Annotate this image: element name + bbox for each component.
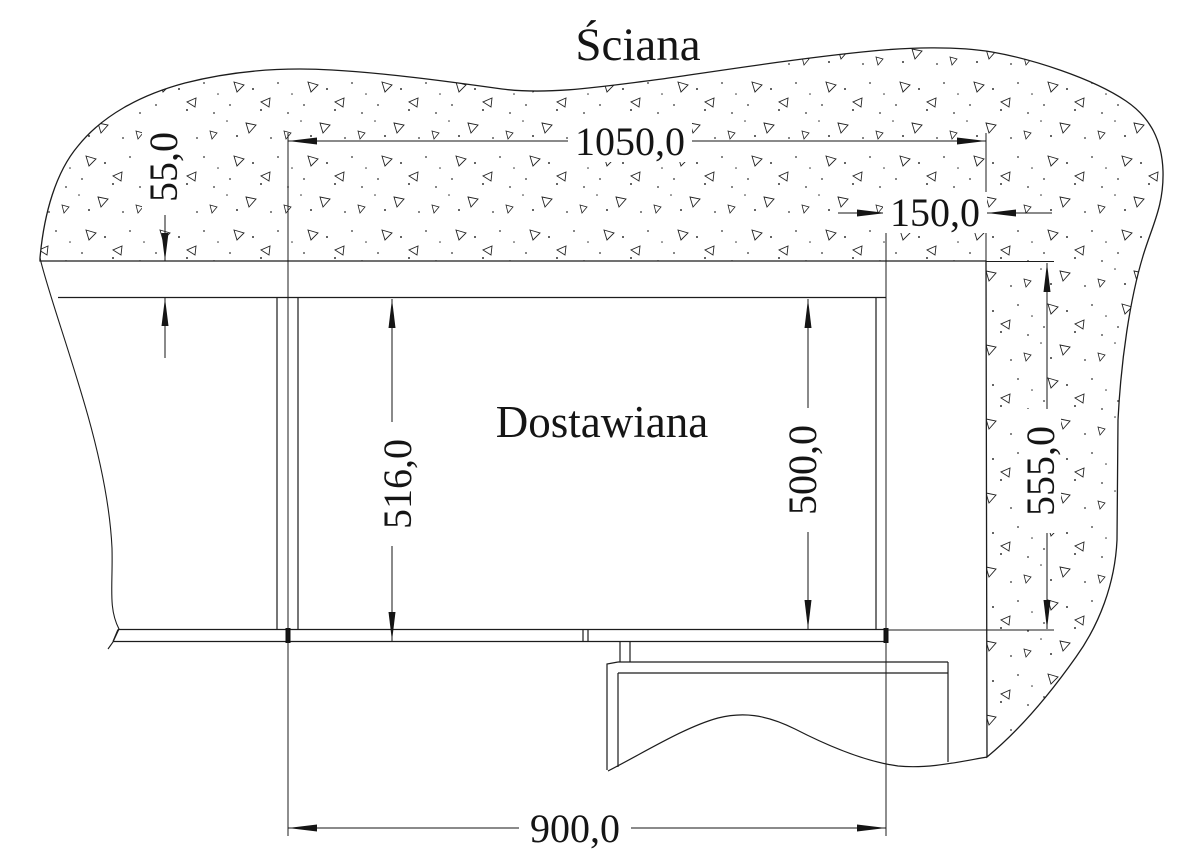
bottom-unit-break-wave <box>608 715 987 771</box>
arrowhead-right-icon <box>857 825 886 832</box>
dim-value-back-gap: 55,0 <box>141 132 186 202</box>
dimension-depth-left: 516,0 <box>375 299 420 641</box>
arrowhead-down-icon <box>805 600 812 629</box>
technical-drawing-page: 1050,0 150,0 55,0 516,0 <box>0 0 1200 858</box>
cad-drawing: 1050,0 150,0 55,0 516,0 <box>0 0 1200 858</box>
dim-value-wall-span: 555,0 <box>1018 426 1063 516</box>
arrowhead-up-icon <box>162 298 169 326</box>
wall-title-label: Ściana <box>575 19 700 71</box>
cabinet-label: Dostawiana <box>496 397 708 447</box>
arrowhead-up-icon <box>805 299 812 328</box>
dim-value-top-width: 1050,0 <box>575 119 685 164</box>
dimension-depth-right: 500,0 <box>780 299 825 629</box>
dim-text-rotated: 55,0 <box>141 119 186 215</box>
arrowhead-up-icon <box>389 299 396 328</box>
bottom-unit-left-cap <box>607 662 618 770</box>
dim-text-rotated: 555,0 <box>1018 409 1063 533</box>
dim-value-depth-left: 516,0 <box>375 439 420 529</box>
dimension-bottom-width: 900,0 <box>288 806 886 851</box>
dim-value-bottom-width: 900,0 <box>530 806 620 851</box>
front-band-left-section <box>113 630 886 642</box>
arrowhead-left-icon <box>288 825 317 832</box>
front-band <box>113 629 886 642</box>
arrowhead-down-icon <box>389 612 396 641</box>
dim-text-rotated: 500,0 <box>780 408 825 532</box>
dim-value-right-offset: 150,0 <box>890 190 980 235</box>
left-break-line <box>40 258 119 649</box>
dim-value-depth-right: 500,0 <box>780 425 825 515</box>
dim-text-rotated: 516,0 <box>375 422 420 546</box>
bottom-unit <box>607 641 987 771</box>
